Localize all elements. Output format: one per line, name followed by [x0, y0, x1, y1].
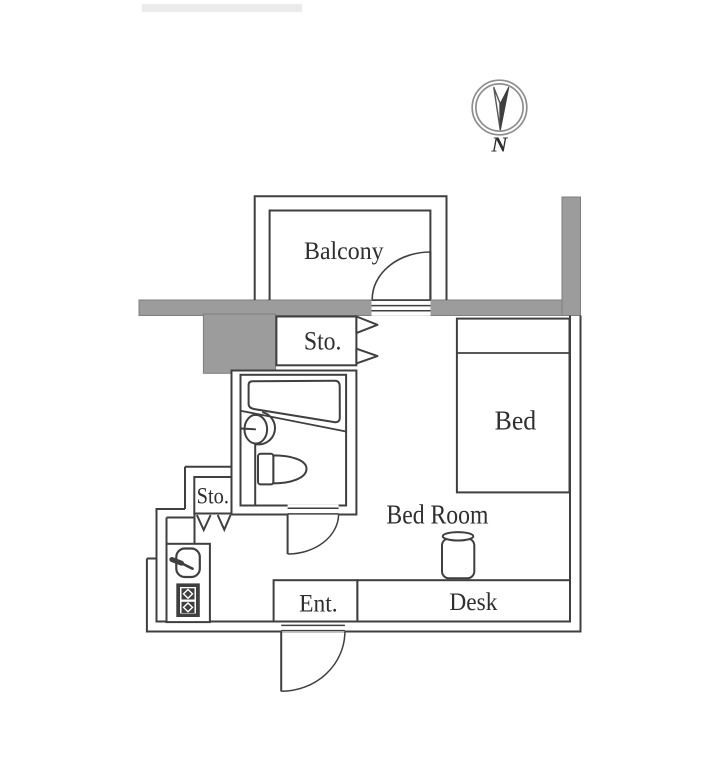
svg-text:N: N: [490, 133, 509, 157]
svg-text:Ent.: Ent.: [299, 588, 338, 617]
svg-text:Sto.: Sto.: [304, 327, 342, 356]
svg-text:Sto.: Sto.: [197, 484, 229, 509]
svg-text:Desk: Desk: [449, 587, 497, 616]
svg-text:Bed: Bed: [495, 406, 537, 436]
svg-text:Balcony: Balcony: [304, 236, 384, 265]
svg-text:Bed Room: Bed Room: [386, 499, 488, 529]
